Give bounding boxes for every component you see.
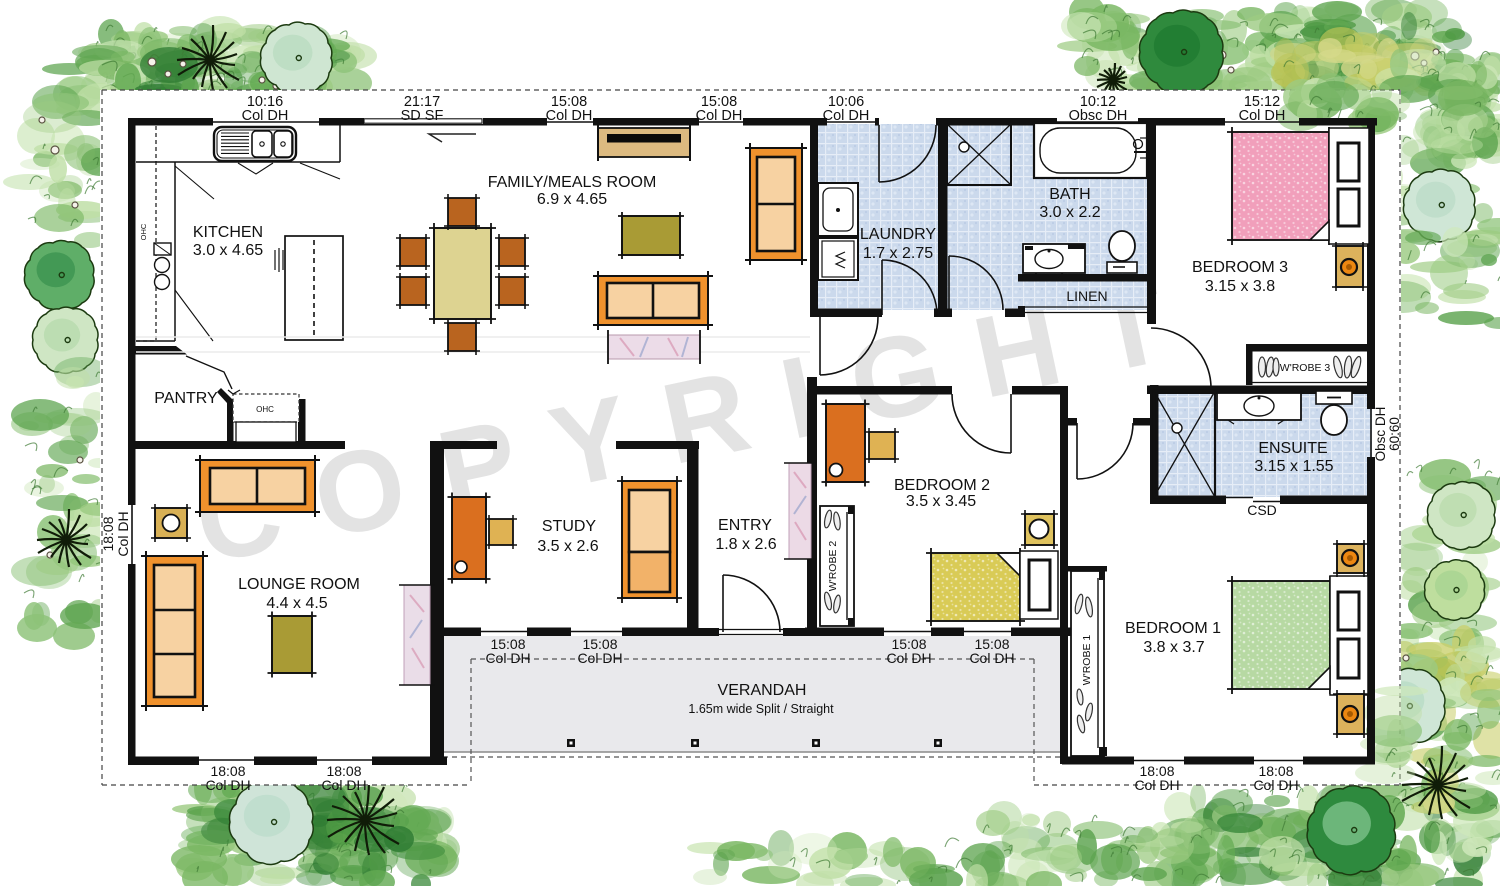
svg-text:Col DH: Col DH [577, 650, 622, 666]
svg-text:W'ROBE 2: W'ROBE 2 [827, 541, 839, 592]
svg-text:3.15 x 3.8: 3.15 x 3.8 [1205, 278, 1275, 295]
svg-text:3.5 x 2.6: 3.5 x 2.6 [537, 538, 598, 555]
svg-text:3.0 x 2.2: 3.0 x 2.2 [1039, 204, 1100, 221]
svg-text:Col DH: Col DH [485, 650, 530, 666]
svg-text:CSD: CSD [1247, 502, 1277, 518]
svg-text:6.9 x 4.65: 6.9 x 4.65 [537, 191, 607, 208]
svg-text:Col DH: Col DH [696, 108, 743, 124]
svg-text:W'ROBE 1: W'ROBE 1 [1081, 635, 1093, 686]
svg-text:OHC: OHC [256, 405, 274, 414]
svg-text:FAMILY/MEALS ROOM: FAMILY/MEALS ROOM [488, 174, 657, 191]
svg-text:STUDY: STUDY [542, 518, 597, 535]
svg-text:Col DH: Col DH [1253, 777, 1298, 793]
svg-text:60:60: 60:60 [1387, 417, 1402, 451]
svg-text:Obsc DH: Obsc DH [1373, 407, 1388, 462]
svg-text:Col DH: Col DH [242, 108, 289, 124]
svg-text:OHC: OHC [139, 223, 148, 240]
svg-text:LOUNGE ROOM: LOUNGE ROOM [238, 576, 360, 593]
svg-text:LINEN: LINEN [1066, 288, 1107, 304]
svg-text:VERANDAH: VERANDAH [718, 682, 807, 699]
svg-text:Obsc DH: Obsc DH [1069, 108, 1128, 124]
svg-text:1.7 x 2.75: 1.7 x 2.75 [863, 245, 933, 262]
svg-text:Col DH: Col DH [969, 650, 1014, 666]
svg-text:ENSUITE: ENSUITE [1258, 440, 1327, 457]
svg-text:PANTRY: PANTRY [154, 390, 218, 407]
svg-text:W'ROBE 3: W'ROBE 3 [1280, 362, 1331, 374]
svg-text:18:08: 18:08 [100, 516, 116, 551]
svg-text:Col DH: Col DH [886, 650, 931, 666]
svg-text:Col DH: Col DH [115, 511, 131, 556]
svg-text:SD SF: SD SF [401, 108, 444, 124]
svg-text:Col DH: Col DH [321, 777, 366, 793]
svg-text:Col DH: Col DH [546, 108, 593, 124]
svg-text:4.4 x 4.5: 4.4 x 4.5 [266, 595, 327, 612]
svg-text:Col DH: Col DH [1134, 777, 1179, 793]
svg-text:1.8 x 2.6: 1.8 x 2.6 [715, 536, 776, 553]
svg-text:3.0 x 4.65: 3.0 x 4.65 [193, 242, 263, 259]
svg-text:LAUNDRY: LAUNDRY [860, 226, 937, 243]
svg-text:3.5 x 3.45: 3.5 x 3.45 [906, 493, 976, 510]
svg-text:ENTRY: ENTRY [718, 517, 772, 534]
svg-text:BEDROOM 3: BEDROOM 3 [1192, 259, 1288, 276]
svg-text:KITCHEN: KITCHEN [193, 224, 263, 241]
svg-text:3.15 x 1.55: 3.15 x 1.55 [1254, 458, 1333, 475]
svg-text:Col DH: Col DH [823, 108, 870, 124]
svg-text:Col DH: Col DH [205, 777, 250, 793]
svg-text:BEDROOM 1: BEDROOM 1 [1125, 620, 1221, 637]
svg-text:BEDROOM 2: BEDROOM 2 [894, 477, 990, 494]
svg-text:BATH: BATH [1049, 186, 1090, 203]
svg-text:3.8 x 3.7: 3.8 x 3.7 [1143, 639, 1204, 656]
svg-text:Col DH: Col DH [1239, 108, 1286, 124]
svg-text:1.65m wide Split / Straight: 1.65m wide Split / Straight [688, 702, 834, 716]
